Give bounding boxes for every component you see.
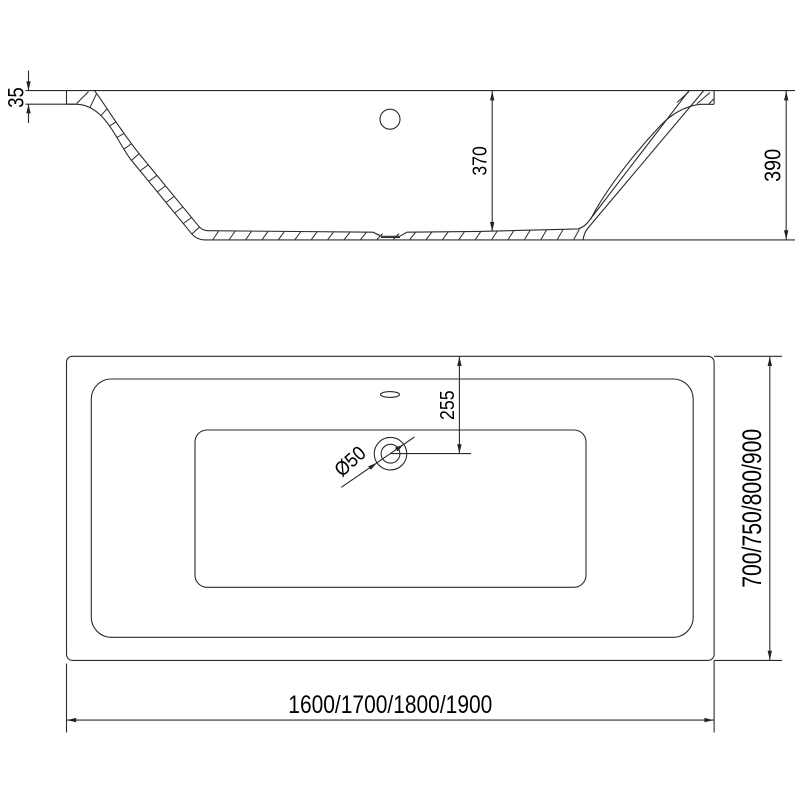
svg-text:370: 370 <box>469 146 491 176</box>
svg-text:390: 390 <box>759 149 785 182</box>
svg-text:700/750/800/900: 700/750/800/900 <box>737 429 767 588</box>
svg-text:255: 255 <box>437 390 459 420</box>
svg-text:1600/1700/1800/1900: 1600/1700/1800/1900 <box>288 691 492 719</box>
svg-text:35: 35 <box>3 87 28 108</box>
